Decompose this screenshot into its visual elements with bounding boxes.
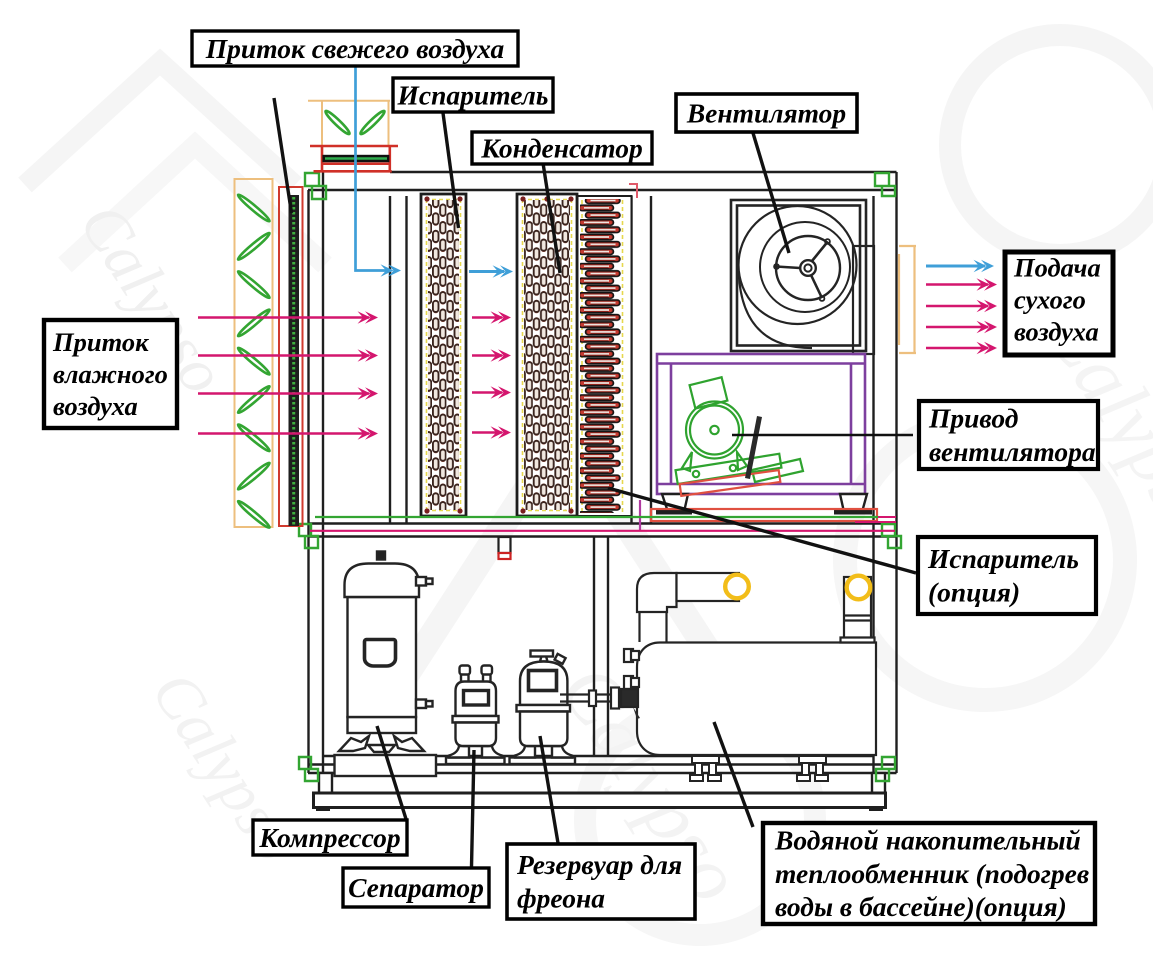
svg-text:влажного: влажного	[53, 359, 168, 389]
svg-text:Испаритель: Испаритель	[927, 543, 1079, 574]
svg-text:Испаритель: Испаритель	[397, 79, 549, 110]
svg-text:Подача: Подача	[1013, 253, 1101, 283]
svg-text:Привод: Привод	[928, 403, 1018, 434]
svg-text:Вентилятор: Вентилятор	[686, 97, 846, 128]
svg-text:Компрессор: Компрессор	[258, 822, 400, 853]
svg-text:вентилятора: вентилятора	[929, 436, 1096, 467]
svg-text:Водяной накопительный: Водяной накопительный	[774, 825, 1081, 856]
svg-text:воздуха: воздуха	[1014, 317, 1099, 347]
svg-text:фреона: фреона	[517, 883, 605, 914]
svg-text:Конденсатор: Конденсатор	[480, 132, 643, 163]
svg-text:воды в бассейне)(опция): воды в бассейне)(опция)	[775, 891, 1067, 922]
svg-text:Приток свежего воздуха: Приток свежего воздуха	[205, 33, 505, 64]
svg-text:Резервуар для: Резервуар для	[516, 849, 682, 880]
svg-text:Приток: Приток	[52, 327, 149, 357]
svg-text:сухого: сухого	[1014, 285, 1086, 315]
svg-text:воздуха: воздуха	[53, 391, 138, 421]
svg-text:Сепаратор: Сепаратор	[348, 872, 484, 903]
svg-text:(опция): (опция)	[928, 577, 1020, 608]
svg-text:теплообменник (подогрев: теплообменник (подогрев	[775, 858, 1089, 889]
